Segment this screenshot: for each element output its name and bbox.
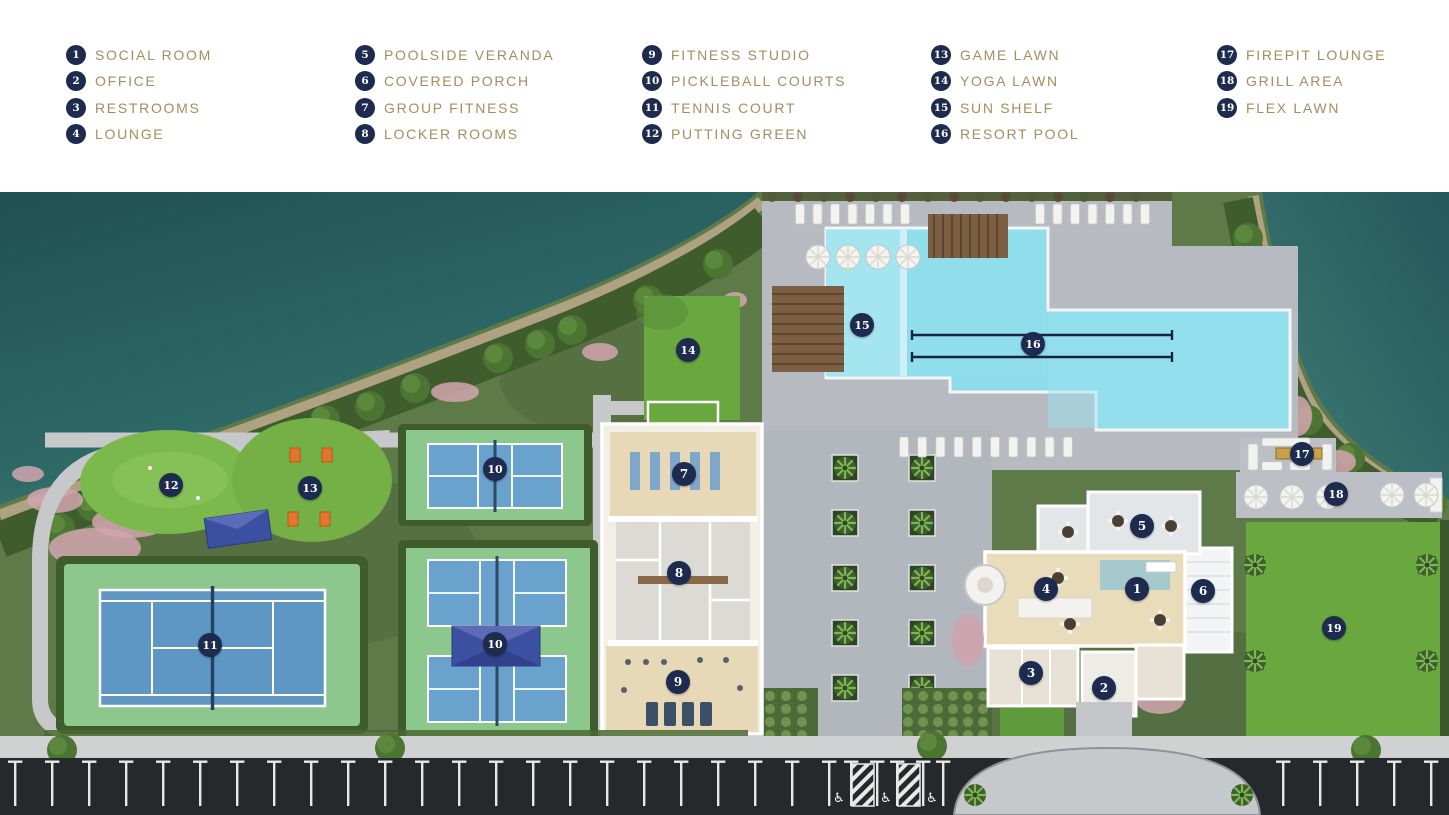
map-marker-9: 9 (666, 670, 690, 694)
pergola-top (928, 214, 1008, 258)
legend-label: PUTTING GREEN (671, 124, 808, 144)
legend-label: SOCIAL ROOM (95, 45, 212, 65)
legend-item: 9FITNESS STUDIO (642, 45, 846, 65)
legend-item: 1SOCIAL ROOM (66, 45, 212, 65)
flex-lawn (1246, 520, 1449, 750)
legend-number-badge: 16 (931, 124, 951, 144)
wheelchair-icon: ♿ (880, 791, 892, 806)
legend-number-badge: 17 (1217, 45, 1237, 65)
pergola-left (772, 286, 844, 372)
legend-label: LOUNGE (95, 124, 164, 144)
map-marker-13: 13 (298, 476, 322, 500)
legend-column-5: 17FIREPIT LOUNGE18GRILL AREA19FLEX LAWN (1217, 45, 1386, 124)
map-marker-1: 1 (1125, 577, 1149, 601)
legend-column-1: 1SOCIAL ROOM2OFFICE3RESTROOMS4LOUNGE (66, 45, 212, 151)
legend-item: 14YOGA LAWN (931, 71, 1079, 91)
map-marker-15: 15 (850, 313, 874, 337)
legend-item: 16RESORT POOL (931, 124, 1079, 144)
map-marker-4: 4 (1034, 577, 1058, 601)
legend-column-3: 9FITNESS STUDIO10PICKLEBALL COURTS11TENN… (642, 45, 846, 151)
legend-label: COVERED PORCH (384, 71, 530, 91)
legend-column-2: 5POOLSIDE VERANDA6COVERED PORCH7GROUP FI… (355, 45, 554, 151)
site-map: ♿ ♿ ♿ (0, 192, 1449, 815)
legend-number-badge: 5 (355, 45, 375, 65)
legend-number-badge: 1 (66, 45, 86, 65)
map-marker-17: 17 (1290, 442, 1314, 466)
legend-number-badge: 13 (931, 45, 951, 65)
legend-number-badge: 14 (931, 71, 951, 91)
legend-item: 10PICKLEBALL COURTS (642, 71, 846, 91)
legend-item: 19FLEX LAWN (1217, 98, 1386, 118)
legend-number-badge: 11 (642, 98, 662, 118)
map-marker-10: 10 (483, 457, 507, 481)
legend-item: 12PUTTING GREEN (642, 124, 846, 144)
deck-hedge (767, 192, 1141, 202)
legend-item: 18GRILL AREA (1217, 71, 1386, 91)
wheelchair-icon: ♿ (833, 791, 845, 806)
legend-item: 2OFFICE (66, 71, 212, 91)
legend-item: 6COVERED PORCH (355, 71, 554, 91)
map-marker-19: 19 (1322, 616, 1346, 640)
legend-number-badge: 12 (642, 124, 662, 144)
legend-label: FIREPIT LOUNGE (1246, 45, 1386, 65)
legend-label: LOCKER ROOMS (384, 124, 519, 144)
legend-label: TENNIS COURT (671, 98, 796, 118)
legend-item: 8LOCKER ROOMS (355, 124, 554, 144)
legend-label: PICKLEBALL COURTS (671, 71, 846, 91)
legend: 1SOCIAL ROOM2OFFICE3RESTROOMS4LOUNGE5POO… (0, 0, 1449, 192)
legend-number-badge: 18 (1217, 71, 1237, 91)
legend-number-badge: 19 (1217, 98, 1237, 118)
site-map-illustration: ♿ ♿ ♿ (0, 192, 1449, 815)
wheelchair-icon: ♿ (926, 791, 938, 806)
legend-item: 17FIREPIT LOUNGE (1217, 45, 1386, 65)
legend-number-badge: 8 (355, 124, 375, 144)
legend-item: 13GAME LAWN (931, 45, 1079, 65)
legend-label: RESTROOMS (95, 98, 201, 118)
legend-number-badge: 10 (642, 71, 662, 91)
map-marker-8: 8 (667, 561, 691, 585)
legend-item: 11TENNIS COURT (642, 98, 846, 118)
map-marker-18: 18 (1324, 482, 1348, 506)
lawn-shadow (636, 294, 688, 330)
legend-number-badge: 7 (355, 98, 375, 118)
map-marker-6: 6 (1191, 579, 1215, 603)
map-marker-5: 5 (1130, 514, 1154, 538)
map-marker-12: 12 (159, 473, 183, 497)
legend-label: FITNESS STUDIO (671, 45, 811, 65)
legend-item: 15SUN SHELF (931, 98, 1079, 118)
legend-item: 7GROUP FITNESS (355, 98, 554, 118)
legend-column-4: 13GAME LAWN14YOGA LAWN15SUN SHELF16RESOR… (931, 45, 1079, 151)
map-marker-2: 2 (1092, 676, 1116, 700)
legend-label: GRILL AREA (1246, 71, 1344, 91)
legend-label: OFFICE (95, 71, 157, 91)
map-marker-3: 3 (1019, 661, 1043, 685)
legend-number-badge: 2 (66, 71, 86, 91)
legend-label: RESORT POOL (960, 124, 1079, 144)
legend-number-badge: 3 (66, 98, 86, 118)
legend-number-badge: 15 (931, 98, 951, 118)
legend-label: GROUP FITNESS (384, 98, 520, 118)
legend-label: FLEX LAWN (1246, 98, 1340, 118)
map-marker-14: 14 (676, 338, 700, 362)
map-marker-11: 11 (198, 633, 222, 657)
legend-number-badge: 9 (642, 45, 662, 65)
legend-label: GAME LAWN (960, 45, 1060, 65)
sidewalk (0, 736, 1449, 758)
legend-label: POOLSIDE VERANDA (384, 45, 554, 65)
legend-item: 3RESTROOMS (66, 98, 212, 118)
map-marker-10: 10 (483, 632, 507, 656)
legend-item: 4LOUNGE (66, 124, 212, 144)
amenity-site-plan: 1SOCIAL ROOM2OFFICE3RESTROOMS4LOUNGE5POO… (0, 0, 1449, 815)
legend-number-badge: 4 (66, 124, 86, 144)
map-marker-7: 7 (672, 462, 696, 486)
legend-number-badge: 6 (355, 71, 375, 91)
legend-item: 5POOLSIDE VERANDA (355, 45, 554, 65)
legend-label: YOGA LAWN (960, 71, 1059, 91)
legend-label: SUN SHELF (960, 98, 1054, 118)
map-marker-16: 16 (1021, 332, 1045, 356)
